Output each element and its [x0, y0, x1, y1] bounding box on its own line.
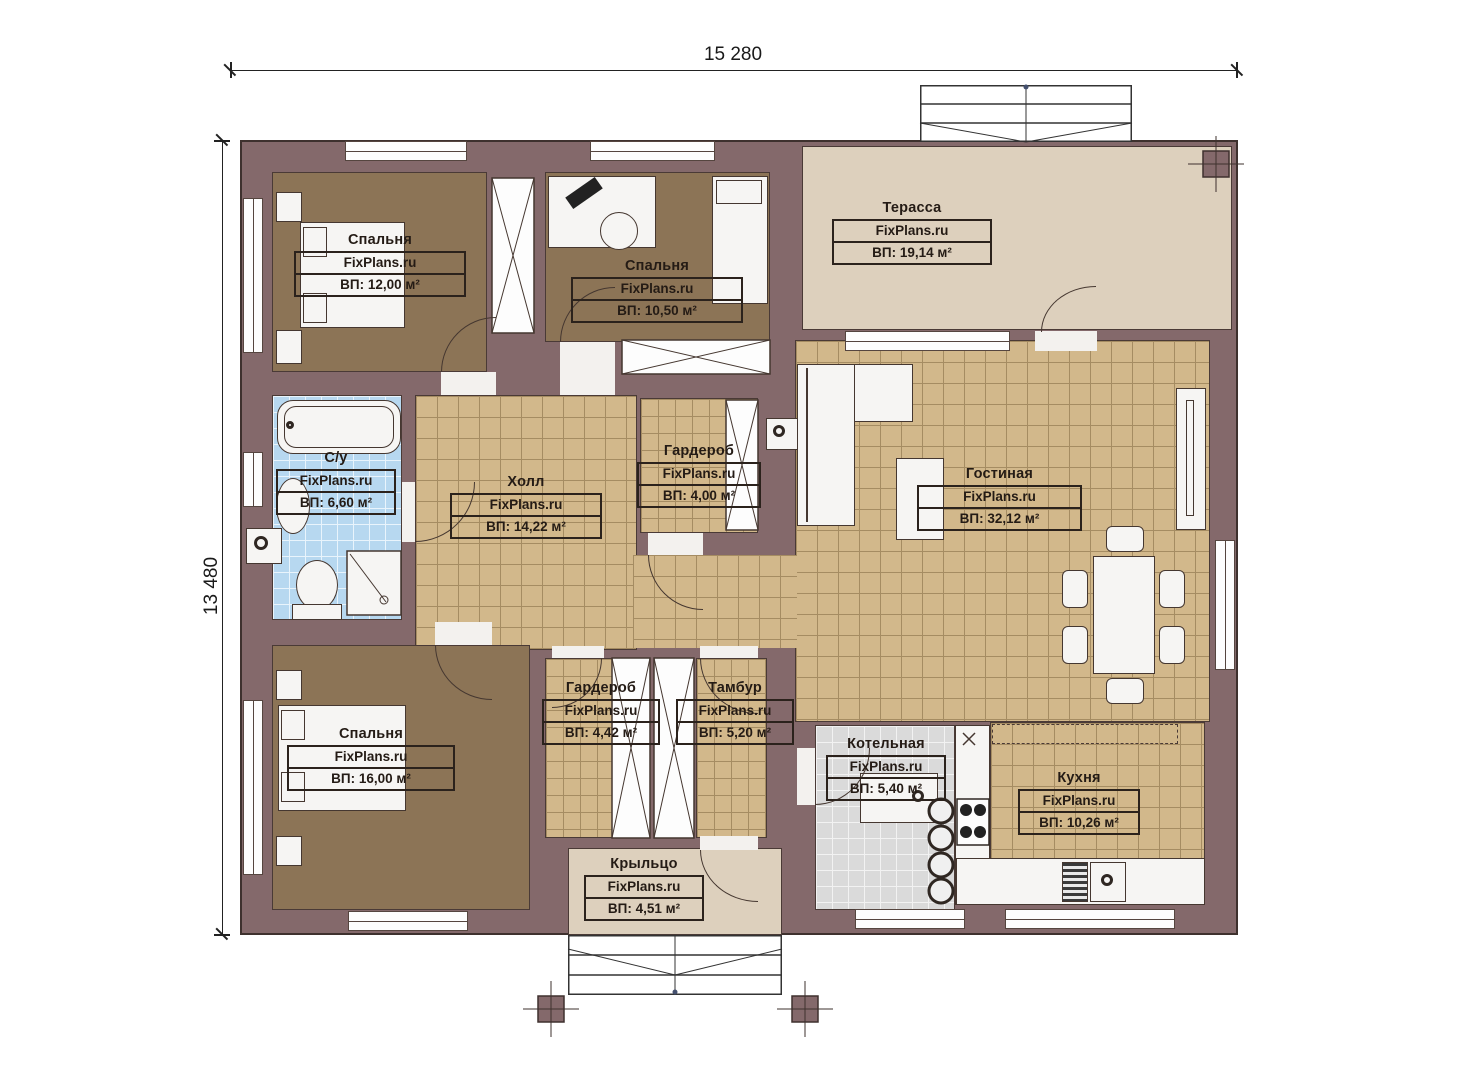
room-name: Крыльцо — [584, 856, 704, 872]
room-name: Котельная — [826, 736, 946, 752]
watermark-box: FixPlans.ru — [832, 219, 992, 243]
area-box: ВП: 19,14 м² — [832, 241, 992, 265]
stove-icon — [956, 798, 990, 846]
watermark-box: FixPlans.ru — [450, 493, 602, 517]
room-label-tambour: Тамбур FixPlans.ru ВП: 5,20 м² — [676, 680, 794, 745]
door-opening-boiler — [797, 748, 815, 805]
area-box: ВП: 32,12 м² — [917, 507, 1082, 531]
room-label-kitchen: Кухня FixPlans.ru ВП: 10,26 м² — [1018, 770, 1140, 835]
room-name: Спальня — [287, 726, 455, 742]
tv-icon — [1186, 400, 1194, 516]
area-box: ВП: 16,00 м² — [287, 767, 455, 791]
room-label-bathroom: С/у FixPlans.ru ВП: 6,60 м² — [276, 450, 396, 515]
room-name: Холл — [450, 474, 602, 490]
room-name: Гостиная — [917, 466, 1082, 482]
nightstand — [276, 670, 302, 700]
window — [243, 452, 263, 507]
area-box: ВП: 4,42 м² — [542, 721, 660, 745]
room-name: Спальня — [294, 232, 466, 248]
watermark-box: FixPlans.ru — [676, 699, 794, 723]
window — [590, 141, 715, 161]
window — [1005, 909, 1175, 929]
watermark-box: FixPlans.ru — [294, 251, 466, 275]
door-opening-bedroom2 — [560, 342, 615, 395]
dining-chair — [1062, 626, 1088, 664]
wardrobe-cabinet-icon — [492, 178, 534, 333]
room-label-bedroom2: Спальня FixPlans.ru ВП: 10,50 м² — [571, 258, 743, 323]
dimension-width-label: 15 280 — [633, 44, 833, 66]
sink-basin-icon — [1101, 874, 1113, 886]
sofa-armrest-line — [806, 368, 808, 522]
area-box: ВП: 5,40 м² — [826, 777, 946, 801]
dining-chair — [1106, 526, 1144, 552]
dining-table — [1093, 556, 1155, 674]
window — [1215, 540, 1235, 670]
door-opening-terrace — [1035, 331, 1097, 351]
watermark-box: FixPlans.ru — [287, 745, 455, 769]
room-name: Гардероб — [542, 680, 660, 696]
room-name: Гардероб — [637, 443, 761, 459]
pillow — [716, 180, 762, 204]
shower-tray — [346, 550, 402, 616]
dishwasher-icon — [1062, 862, 1088, 902]
room-label-boiler: Котельная FixPlans.ru ВП: 5,40 м² — [826, 736, 946, 801]
watermark-box: FixPlans.ru — [637, 462, 761, 486]
door-opening-tambour — [700, 646, 758, 658]
nightstand — [276, 836, 302, 866]
bathtub-inner — [284, 406, 394, 448]
room-label-living: Гостиная FixPlans.ru ВП: 32,12 м² — [917, 466, 1082, 531]
toilet-tank — [292, 604, 342, 620]
door-opening-bathroom — [402, 482, 415, 542]
room-name: Кухня — [1018, 770, 1140, 786]
area-box: ВП: 10,50 м² — [571, 299, 743, 323]
room-label-bedroom3: Спальня FixPlans.ru ВП: 16,00 м² — [287, 726, 455, 791]
column-marker-icon — [523, 981, 579, 1037]
nightstand — [276, 330, 302, 364]
terrace-steps — [920, 85, 1132, 142]
window — [345, 141, 467, 161]
area-box: ВП: 14,22 м² — [450, 515, 602, 539]
window — [243, 198, 263, 353]
toilet — [296, 560, 338, 610]
bathtub-tap-icon — [286, 421, 294, 429]
floor-plan-page: 15 280 13 480 — [0, 0, 1473, 1080]
room-label-porch: Крыльцо FixPlans.ru ВП: 4,51 м² — [584, 856, 704, 921]
desk-chair — [600, 212, 638, 250]
vent-x-icon — [962, 732, 976, 746]
dining-chair — [1106, 678, 1144, 704]
room-name: С/у — [276, 450, 396, 466]
dining-chair — [1159, 626, 1185, 664]
dimension-line-top — [230, 70, 1237, 71]
watermark-box: FixPlans.ru — [276, 469, 396, 493]
watermark-box: FixPlans.ru — [1018, 789, 1140, 813]
watermark-box: FixPlans.ru — [542, 699, 660, 723]
watermark-box: FixPlans.ru — [917, 485, 1082, 509]
column-marker-icon — [1188, 136, 1244, 192]
pillow — [303, 293, 327, 323]
window — [243, 700, 263, 875]
dimension-height-label: 13 480 — [201, 536, 223, 636]
door-opening-wardrobe1 — [648, 533, 703, 555]
nightstand — [276, 192, 302, 222]
room-name: Тамбур — [676, 680, 794, 696]
room-label-bedroom1: Спальня FixPlans.ru ВП: 12,00 м² — [294, 232, 466, 297]
watermark-box: FixPlans.ru — [571, 277, 743, 301]
area-box: ВП: 10,26 м² — [1018, 811, 1140, 835]
door-opening-wardrobe2 — [552, 646, 604, 658]
door-opening-bedroom3 — [435, 622, 492, 645]
watermark-box: FixPlans.ru — [584, 875, 704, 899]
wardrobe-cabinet-icon — [622, 340, 770, 374]
room-name: Терасса — [832, 200, 992, 216]
window — [348, 911, 468, 931]
area-box: ВП: 6,60 м² — [276, 491, 396, 515]
watermark-box: FixPlans.ru — [826, 755, 946, 779]
column-marker-icon — [777, 981, 833, 1037]
chimney-flue-icon — [773, 425, 785, 437]
window — [855, 909, 965, 929]
dining-chair — [1062, 570, 1088, 608]
room-label-wardrobe2: Гардероб FixPlans.ru ВП: 4,42 м² — [542, 680, 660, 745]
door-opening-entrance — [700, 836, 758, 850]
area-box: ВП: 4,51 м² — [584, 897, 704, 921]
room-label-terrace: Терасса FixPlans.ru ВП: 19,14 м² — [832, 200, 992, 265]
door-opening-bedroom1 — [441, 372, 496, 395]
room-label-hall: Холл FixPlans.ru ВП: 14,22 м² — [450, 474, 602, 539]
area-box: ВП: 12,00 м² — [294, 273, 466, 297]
boiler-unit-icon — [926, 798, 956, 904]
dining-chair — [1159, 570, 1185, 608]
area-box: ВП: 5,20 м² — [676, 721, 794, 745]
window-terrace-wall — [845, 331, 1010, 351]
washing-machine-drum-icon — [254, 536, 268, 550]
room-label-wardrobe1: Гардероб FixPlans.ru ВП: 4,00 м² — [637, 443, 761, 508]
room-name: Спальня — [571, 258, 743, 274]
upper-cabinets-dashed — [992, 724, 1178, 744]
porch-steps — [568, 935, 782, 995]
area-box: ВП: 4,00 м² — [637, 484, 761, 508]
